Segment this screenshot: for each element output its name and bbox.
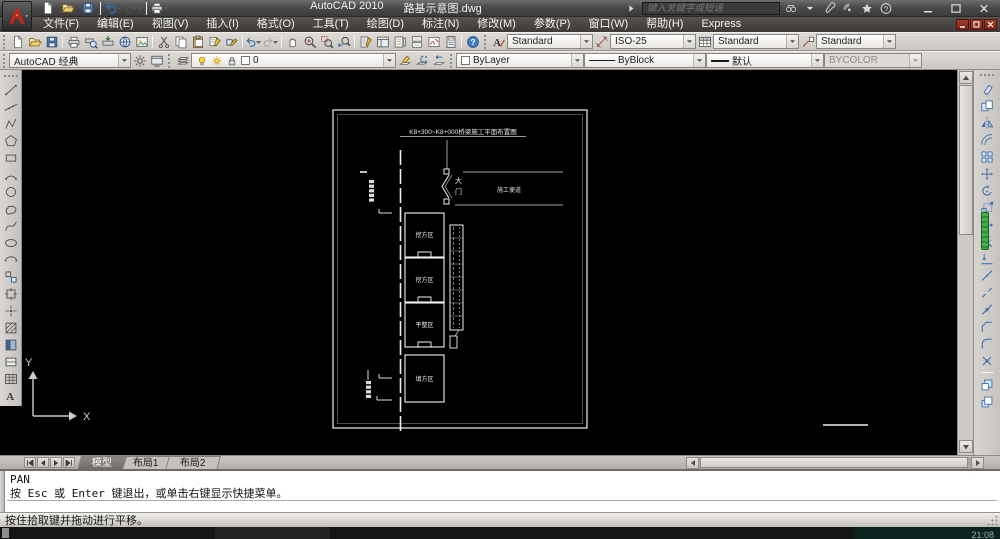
publish-icon	[101, 35, 115, 49]
mleader-style-value: Standard	[821, 36, 862, 47]
help-icon[interactable]: ?	[878, 2, 894, 15]
join-icon	[980, 303, 994, 317]
vertical-scroll-thumb[interactable]	[959, 85, 973, 235]
menu-item-3[interactable]: 插入(I)	[197, 17, 247, 32]
hatch-tool[interactable]	[1, 319, 21, 336]
chevron-down-icon[interactable]	[786, 35, 798, 48]
arc-icon	[4, 168, 18, 182]
window-controls	[920, 2, 992, 15]
fillet-tool[interactable]	[977, 335, 998, 352]
plot-button[interactable]	[150, 1, 169, 16]
toolbar-separator	[152, 35, 153, 48]
document-window-controls	[956, 19, 997, 30]
gate-label-2: 门	[455, 187, 462, 196]
mtext-tool[interactable]: A	[1, 387, 21, 404]
insert-block-tool[interactable]	[1, 268, 21, 285]
command-history-line-2: 按 Esc 或 Enter 键退出，或单击右键显示快捷菜单。	[10, 485, 287, 501]
layout-tabs: 模型布局1布局2	[79, 456, 213, 470]
toolbar-grip[interactable]	[168, 54, 171, 68]
erase-icon	[980, 82, 994, 96]
mirror-tool[interactable]	[977, 114, 998, 131]
paste-icon	[191, 35, 205, 49]
zoom-icon	[303, 35, 317, 49]
globe-icon	[118, 35, 132, 49]
circle-tool[interactable]	[1, 183, 21, 200]
props-icon	[359, 35, 373, 49]
zone-label-3: 平整区	[415, 321, 433, 329]
array-icon	[980, 150, 994, 164]
text-style-value: Standard	[512, 36, 553, 47]
toolbar-separator	[146, 2, 147, 15]
point-tool[interactable]	[1, 302, 21, 319]
text-style-button[interactable]: A	[490, 34, 507, 50]
3ddwf-button[interactable]	[116, 34, 133, 50]
undo-button[interactable]	[104, 1, 123, 16]
dim-style-value: ISO-25	[615, 36, 647, 47]
chainage-ticks	[368, 209, 392, 400]
scroll-left-button[interactable]	[686, 457, 699, 469]
app-title: AutoCAD 2010	[310, 0, 383, 16]
chevron-down-icon[interactable]	[883, 35, 895, 48]
polygon-tool[interactable]	[1, 132, 21, 149]
svg-text:?: ?	[884, 4, 888, 13]
menu-item-9[interactable]: 参数(P)	[525, 17, 580, 32]
move-icon	[980, 167, 994, 181]
break-at-point-tool[interactable]	[977, 267, 998, 284]
tab-model[interactable]: 模型	[77, 456, 127, 470]
fillet-icon	[980, 337, 994, 351]
array-tool[interactable]	[977, 148, 998, 165]
rotate-tool[interactable]	[977, 182, 998, 199]
gradient-tool[interactable]	[1, 336, 21, 353]
earc-icon	[4, 253, 18, 267]
color-combo[interactable]: ByLayer	[456, 53, 584, 68]
chevron-down-icon[interactable]	[118, 54, 130, 67]
dwofront-icon	[980, 378, 994, 392]
lineweight-combo[interactable]: 默认	[706, 53, 824, 68]
mleader-style-combo[interactable]: Standard	[816, 34, 896, 49]
app-menu-button[interactable]	[2, 1, 32, 31]
tab-layout2[interactable]: 布局2	[165, 456, 221, 470]
svg-text:A: A	[493, 37, 501, 48]
dropdown-caret-icon	[255, 38, 262, 46]
ucs-icon	[29, 371, 78, 421]
layer-properties-button[interactable]	[174, 53, 191, 69]
layer-combo[interactable]: 0	[191, 53, 396, 68]
prev-tab-button[interactable]	[37, 457, 49, 468]
redo-button[interactable]	[262, 34, 279, 50]
command-separator	[7, 500, 997, 501]
linetype-value: ByBlock	[618, 55, 654, 66]
chevron-down-icon[interactable]	[693, 54, 705, 67]
favorites-star-icon[interactable]	[859, 2, 875, 15]
workspace-value: AutoCAD 经典	[14, 53, 78, 68]
quick-access-toolbar	[38, 0, 169, 17]
linetype-sample-icon	[589, 60, 615, 61]
mleader-style-icon	[801, 35, 815, 49]
dropdown-caret-icon	[162, 4, 169, 12]
color-value: ByLayer	[473, 55, 510, 66]
menu-item-7[interactable]: 标注(N)	[413, 17, 468, 32]
draw-toolbar-dock: A	[0, 70, 22, 406]
drawing-title: K8+300~K8+000桥梁施工平面布置图	[409, 127, 516, 136]
window-minimize-button[interactable]	[920, 2, 936, 15]
open-button[interactable]	[58, 1, 77, 16]
horizontal-scroll-thumb[interactable]	[700, 457, 968, 468]
cut-icon	[157, 35, 171, 49]
xline-tool[interactable]	[1, 98, 21, 115]
table-style-button[interactable]	[696, 34, 713, 50]
tab-label: 布局2	[179, 457, 205, 470]
toolbar-grip[interactable]	[484, 35, 487, 49]
line-tool[interactable]	[1, 81, 21, 98]
ellipse-arc-tool[interactable]	[1, 251, 21, 268]
layer-previous-button[interactable]	[430, 53, 447, 69]
dim-style-combo[interactable]: ISO-25	[610, 34, 696, 49]
menu-item-6[interactable]: 绘图(D)	[358, 17, 413, 32]
toolbar-grip[interactable]	[980, 74, 994, 77]
rectangle-tool[interactable]	[1, 149, 21, 166]
search-toggle-icon[interactable]	[623, 2, 639, 15]
make-object-layer-current-button[interactable]	[396, 53, 413, 69]
layers-icon	[176, 54, 190, 68]
toolbar-separator	[242, 35, 243, 48]
bring-to-front-tool[interactable]	[977, 376, 998, 393]
mleader-style-button[interactable]	[799, 34, 816, 50]
layer-sync-icon	[415, 54, 429, 68]
tab-label: 模型	[92, 457, 112, 470]
toolbar-grip[interactable]	[3, 54, 6, 68]
site-strip	[450, 225, 463, 348]
blockedit-icon	[225, 35, 239, 49]
pline-icon	[4, 117, 18, 131]
toolbar-grip[interactable]	[4, 75, 18, 78]
export-image-button[interactable]	[133, 34, 150, 50]
save-button[interactable]	[78, 1, 97, 16]
quickcalc-button[interactable]	[442, 34, 459, 50]
dropdown-caret-icon	[116, 4, 123, 12]
menu-item-5[interactable]: 工具(T)	[304, 17, 358, 32]
svg-text:?: ?	[470, 37, 475, 47]
new-icon	[41, 1, 55, 15]
chevron-down-icon[interactable]	[383, 54, 395, 67]
road-label: 施工便道	[497, 186, 521, 194]
help-button[interactable]: ?	[464, 34, 481, 50]
mirror-icon	[980, 116, 994, 130]
menu-bar: 文件(F)编辑(E)视图(V)插入(I)格式(O)工具(T)绘图(D)标注(N)…	[0, 17, 1000, 32]
layer-previous-icon	[432, 54, 446, 68]
chamfer-icon	[980, 320, 994, 334]
legend-marks	[360, 171, 374, 398]
zone-label-2: 挖方区	[415, 276, 433, 284]
toolbar-grip[interactable]	[450, 54, 453, 68]
point-icon	[4, 304, 18, 318]
next-tab-button[interactable]	[50, 457, 62, 468]
window-frame-icon	[150, 54, 164, 68]
polygon-icon	[4, 134, 18, 148]
taskbar-clock: 21:08	[971, 530, 994, 539]
color-swatch	[461, 56, 470, 65]
workspace-switch-button[interactable]	[148, 53, 165, 69]
table-tool[interactable]	[1, 370, 21, 387]
table-style-value: Standard	[718, 36, 759, 47]
polyline-tool[interactable]	[1, 115, 21, 132]
layer-update-button[interactable]	[413, 53, 430, 69]
pan-icon	[286, 35, 300, 49]
palettes-icon	[393, 35, 407, 49]
os-taskbar[interactable]: 21:08	[0, 527, 1000, 539]
paper-border	[333, 110, 587, 428]
horizontal-scroll-track[interactable]	[699, 457, 971, 469]
main-area: K8+300~K8+000桥梁施工平面布置图 大 门	[0, 70, 1000, 455]
spline-icon	[4, 219, 18, 233]
mkblock-icon	[4, 287, 18, 301]
open-icon	[28, 35, 42, 49]
menu-item-1[interactable]: 编辑(E)	[88, 17, 143, 32]
open-icon	[61, 1, 75, 15]
toolbar-separator	[354, 35, 355, 48]
chevron-down-icon[interactable]	[580, 35, 592, 48]
properties-palette-button[interactable]	[357, 34, 374, 50]
chevron-down-icon[interactable]	[683, 35, 695, 48]
search-dropdown-icon[interactable]	[802, 2, 818, 15]
xline-icon	[4, 100, 18, 114]
copy-tool[interactable]	[977, 97, 998, 114]
ellipse-tool[interactable]	[1, 234, 21, 251]
plot-button[interactable]	[65, 34, 82, 50]
sheetset-manager-button[interactable]	[408, 34, 425, 50]
menu-item-4[interactable]: 格式(O)	[248, 17, 304, 32]
layer-on-bulb-icon[interactable]	[196, 55, 208, 67]
menu-item-11[interactable]: 帮助(H)	[637, 17, 692, 32]
drawing-canvas[interactable]: K8+300~K8+000桥梁施工平面布置图 大 门	[22, 70, 957, 455]
undo-button[interactable]	[245, 34, 262, 50]
designcenter-button[interactable]	[374, 34, 391, 50]
redo-button[interactable]	[124, 1, 143, 16]
linetype-combo[interactable]: ByBlock	[584, 53, 706, 68]
doc-title: 路基示意图.dwg	[404, 0, 482, 16]
standard-toolbar-row: ? A Standard ISO-25 Standard Standard	[0, 32, 1000, 51]
layout-tab-row: 模型布局1布局2	[0, 455, 1000, 469]
zone-label-4: 填方区	[415, 375, 433, 383]
autocad-logo-icon	[6, 5, 28, 27]
preview-icon	[84, 35, 98, 49]
ucs-x-label: X	[83, 411, 91, 423]
zoomwin-icon	[320, 35, 334, 49]
window-restore-button[interactable]	[948, 2, 964, 15]
send-to-back-tool[interactable]	[977, 393, 998, 410]
dock-indicator	[981, 212, 989, 250]
save-icon	[81, 1, 95, 15]
tab-label: 布局1	[133, 457, 159, 470]
zoom-previous-button[interactable]	[335, 34, 352, 50]
explode-icon	[980, 354, 994, 368]
plot-preview-button[interactable]	[82, 34, 99, 50]
text-style-combo[interactable]: Standard	[507, 34, 593, 49]
vertical-scrollbar[interactable]	[957, 70, 973, 455]
resize-grip-icon[interactable]	[986, 514, 999, 527]
infocenter-search-input[interactable]	[642, 2, 780, 15]
menu-item-0[interactable]: 文件(F)	[34, 17, 88, 32]
zoom-window-button[interactable]	[318, 34, 335, 50]
zone-label-1: 挖方区	[415, 231, 433, 239]
insblock-icon	[4, 270, 18, 284]
sheetset-icon	[410, 35, 424, 49]
image-icon	[135, 35, 149, 49]
line-icon	[4, 83, 18, 97]
window-title: AutoCAD 2010 路基示意图.dwg	[169, 0, 623, 16]
command-input[interactable]	[10, 502, 930, 512]
plot-style-value: BYCOLOR	[829, 55, 878, 66]
toolbar-separator	[461, 35, 462, 48]
cut-button[interactable]	[155, 34, 172, 50]
qnew-button[interactable]	[9, 34, 26, 50]
revcloud-icon	[4, 202, 18, 216]
region-icon	[4, 355, 18, 369]
copy-clip-button[interactable]	[172, 34, 189, 50]
print-icon	[67, 35, 81, 49]
paste-button[interactable]	[189, 34, 206, 50]
autocad-window: AutoCAD 2010 路基示意图.dwg ?	[0, 0, 1000, 539]
extend-tool[interactable]	[977, 250, 998, 267]
window-close-button[interactable]	[976, 2, 992, 15]
first-tab-button[interactable]	[24, 457, 36, 468]
chevron-down-icon[interactable]	[571, 54, 583, 67]
zone-boxes	[405, 213, 444, 402]
status-bar: 按住拾取键并拖动进行平移。	[0, 512, 1000, 527]
workspace-combo[interactable]: AutoCAD 经典	[9, 53, 131, 68]
table-style-combo[interactable]: Standard	[713, 34, 799, 49]
layer-color-swatch[interactable]	[241, 56, 250, 65]
copydoc-icon	[174, 35, 188, 49]
paper-inner-border	[338, 115, 583, 424]
spline-tool[interactable]	[1, 217, 21, 234]
command-window: PAN 按 Esc 或 Enter 键退出，或单击右键显示快捷菜单。	[0, 469, 1000, 512]
menu-item-12[interactable]: Express	[692, 17, 750, 32]
match-icon	[208, 35, 222, 49]
mcopy-icon	[980, 99, 994, 113]
layer-thaw-sun-icon[interactable]	[211, 55, 223, 67]
chevron-down-icon[interactable]	[811, 54, 823, 67]
publish-button[interactable]	[99, 34, 116, 50]
markup-icon	[427, 35, 441, 49]
layer-current-icon	[398, 54, 412, 68]
layer-lock-icon[interactable]	[226, 55, 238, 67]
tool-palettes-button[interactable]	[391, 34, 408, 50]
save-button[interactable]	[43, 34, 60, 50]
markup-manager-button[interactable]	[425, 34, 442, 50]
infocenter: ?	[623, 0, 894, 17]
command-window-drag-handle[interactable]	[0, 471, 5, 512]
scroll-right-button[interactable]	[971, 457, 984, 469]
current-layer-name: 0	[253, 55, 259, 66]
horizontal-scrollbar[interactable]	[686, 457, 984, 469]
tabletool-icon	[4, 372, 18, 386]
break-tool[interactable]	[977, 284, 998, 301]
doc-close-button[interactable]	[984, 19, 997, 30]
region-tool[interactable]	[1, 353, 21, 370]
svg-text:A: A	[6, 391, 14, 403]
move-tool[interactable]	[977, 165, 998, 182]
lineweight-sample-icon	[711, 60, 729, 62]
toolbar-grip[interactable]	[3, 35, 6, 49]
gate-shape	[442, 169, 452, 204]
open-button[interactable]	[26, 34, 43, 50]
search-icon[interactable]	[783, 2, 799, 15]
block-editor-button[interactable]	[223, 34, 240, 50]
scroll-up-button[interactable]	[959, 71, 973, 84]
dim-style-icon	[595, 35, 609, 49]
pan-realtime-button[interactable]	[284, 34, 301, 50]
qnew-button[interactable]	[38, 1, 57, 16]
doc-minimize-button[interactable]	[956, 19, 969, 30]
draw-toolbar: A	[1, 81, 21, 404]
dwoback-icon	[980, 395, 994, 409]
doc-restore-button[interactable]	[970, 19, 983, 30]
plot-style-combo[interactable]: BYCOLOR	[824, 53, 922, 68]
erase-tool[interactable]	[977, 80, 998, 97]
toolbar-separator	[100, 2, 101, 15]
communication-center-icon[interactable]	[840, 2, 856, 15]
circle-icon	[4, 185, 18, 199]
ucs-y-label: Y	[25, 357, 33, 369]
arc-tool[interactable]	[1, 166, 21, 183]
taskbar-segment	[215, 527, 330, 539]
match-properties-button[interactable]	[206, 34, 223, 50]
revcloud-tool[interactable]	[1, 200, 21, 217]
last-tab-button[interactable]	[63, 457, 75, 468]
menu-item-8[interactable]: 修改(M)	[468, 17, 525, 32]
taskbar-button[interactable]	[2, 528, 9, 538]
extend-icon	[980, 252, 994, 266]
designcenter-icon	[376, 35, 390, 49]
toolbar-separator	[281, 35, 282, 48]
calc-icon	[444, 35, 458, 49]
workspace-settings-button[interactable]	[131, 53, 148, 69]
help-icon: ?	[466, 35, 480, 49]
save-icon	[45, 35, 59, 49]
rotate-icon	[980, 184, 994, 198]
gate-label-1: 大	[455, 176, 462, 185]
chamfer-tool[interactable]	[977, 318, 998, 335]
cad-drawing: K8+300~K8+000桥梁施工平面布置图 大 门	[22, 70, 957, 455]
scroll-down-button[interactable]	[959, 440, 973, 453]
table-style-icon	[698, 35, 712, 49]
ellipse-icon	[4, 236, 18, 250]
toolbar-separator	[981, 372, 994, 373]
gear-icon	[133, 54, 147, 68]
offset-tool[interactable]	[977, 131, 998, 148]
explode-tool[interactable]	[977, 352, 998, 369]
break-icon	[980, 286, 994, 300]
breakpt-icon	[980, 269, 994, 283]
menu-item-2[interactable]: 视图(V)	[143, 17, 198, 32]
status-message: 按住拾取键并拖动进行平移。	[5, 512, 148, 528]
gradient-icon	[4, 338, 18, 352]
make-block-tool[interactable]	[1, 285, 21, 302]
menu-item-10[interactable]: 窗口(W)	[579, 17, 637, 32]
zoom-realtime-button[interactable]	[301, 34, 318, 50]
title-bar: AutoCAD 2010 路基示意图.dwg ?	[0, 0, 1000, 17]
dim-style-button[interactable]	[593, 34, 610, 50]
new-icon	[11, 35, 25, 49]
subscription-wrench-icon[interactable]	[821, 2, 837, 15]
chevron-down-icon	[909, 54, 921, 67]
hatch-icon	[4, 321, 18, 335]
join-tool[interactable]	[977, 301, 998, 318]
rectangle-icon	[4, 151, 18, 165]
lineweight-value: 默认	[732, 53, 752, 68]
